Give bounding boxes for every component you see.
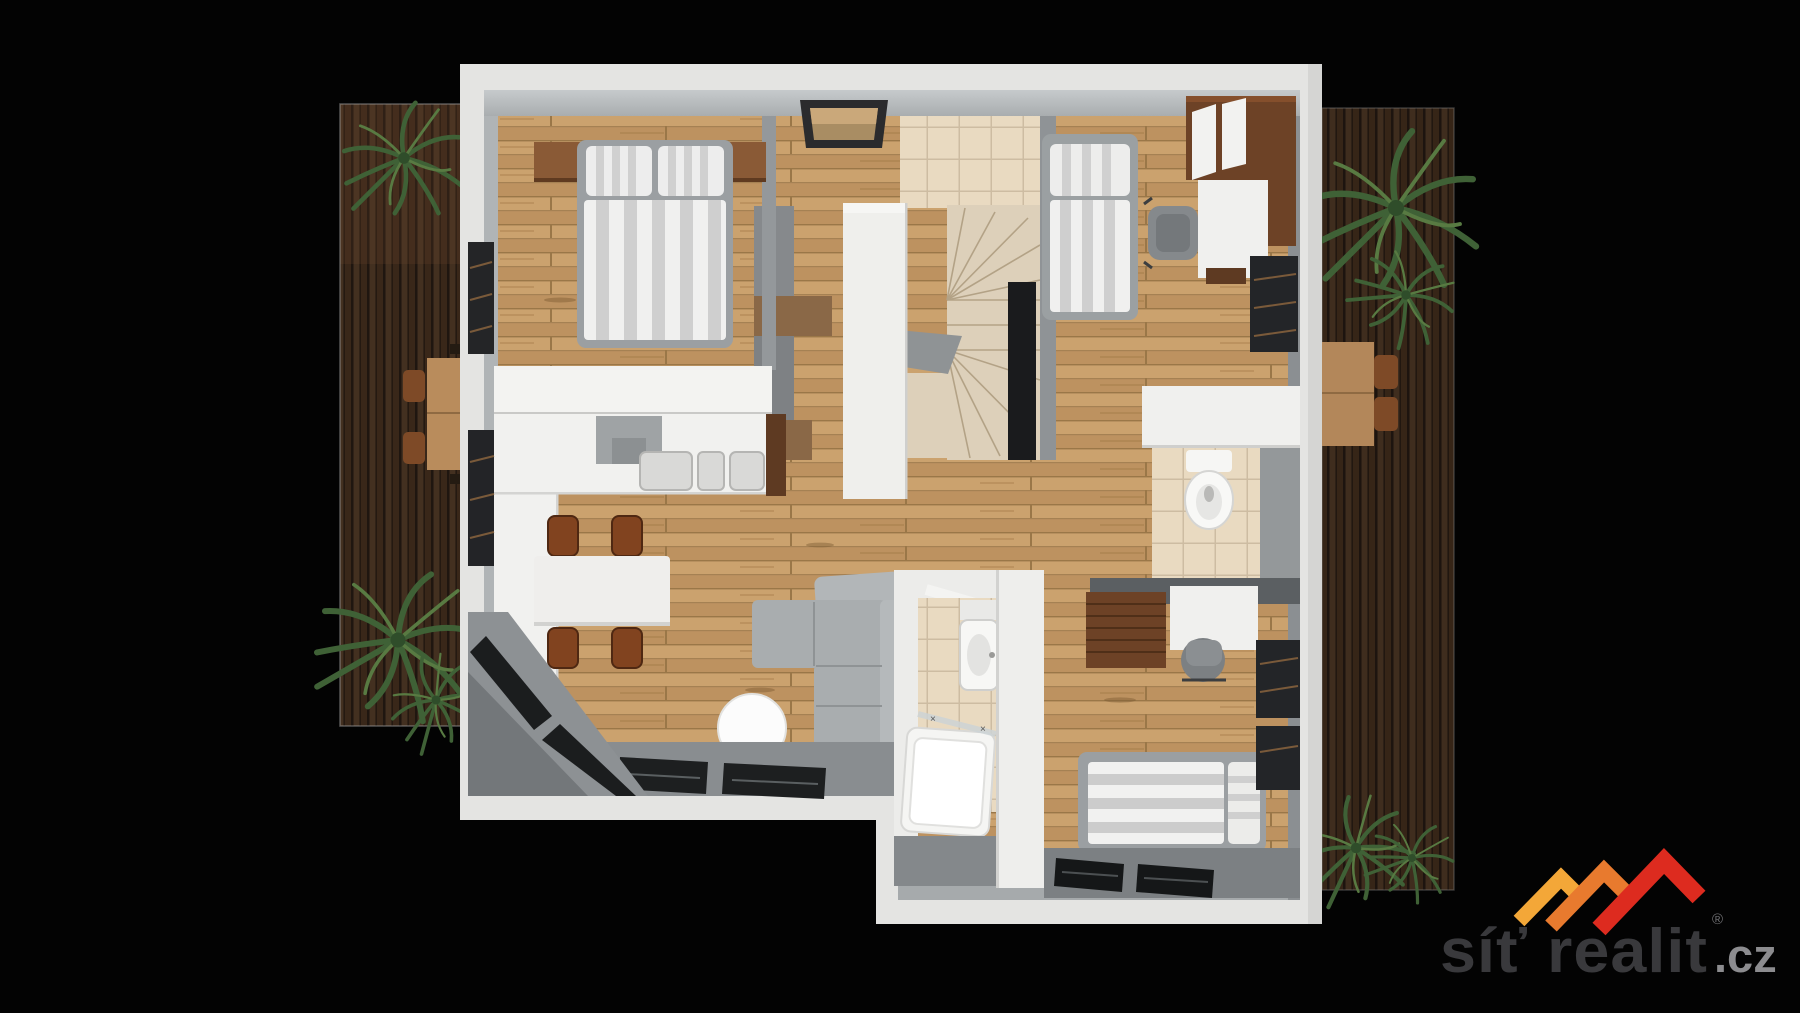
kitchen-upper-cabinets [494,366,772,414]
washbasin [960,600,998,690]
skylight [800,100,888,148]
pillow [1228,762,1260,844]
walnut-wardrobe [1086,592,1166,668]
toilet [1185,450,1233,529]
floorplan-render: ×× [0,0,1800,1013]
building: ×× [460,64,1322,924]
wall-pillar [996,570,1044,888]
pillow [586,146,652,196]
outdoor-chair [403,370,425,402]
outdoor-chair [1374,355,1398,389]
striped-duvet [1088,762,1224,844]
wc-cabinet [1142,386,1300,448]
window [1256,726,1300,790]
window [1250,256,1298,352]
pillow [658,146,724,196]
dining-table [534,556,670,626]
stair-void [1008,282,1036,460]
bathroom-center: ×× [894,570,998,886]
striped-duvet [584,200,726,340]
single-bed [1042,134,1138,320]
dining-chair [548,516,578,556]
logo-text: síť realit [1440,917,1708,986]
outdoor-chair [403,432,425,464]
svg-text:×: × [930,714,936,725]
south-glass-wall [1044,848,1300,898]
outdoor-chair [1374,397,1398,431]
dining-chair [612,516,642,556]
dining-chair [612,628,642,668]
double-bed [577,140,733,348]
kitchen-sink [640,452,764,490]
bathtub [900,727,995,837]
logo-tld: .cz [1714,929,1777,982]
pillow [1050,144,1130,196]
dining-chair [548,628,578,668]
double-bed [1078,752,1266,852]
svg-text:×: × [980,724,986,735]
tall-white-closet [843,203,907,499]
floorplan-svg: ×× [0,0,1800,1013]
striped-duvet [1050,200,1130,312]
logo-registered-mark: ® [1712,911,1723,928]
window [1256,640,1300,718]
